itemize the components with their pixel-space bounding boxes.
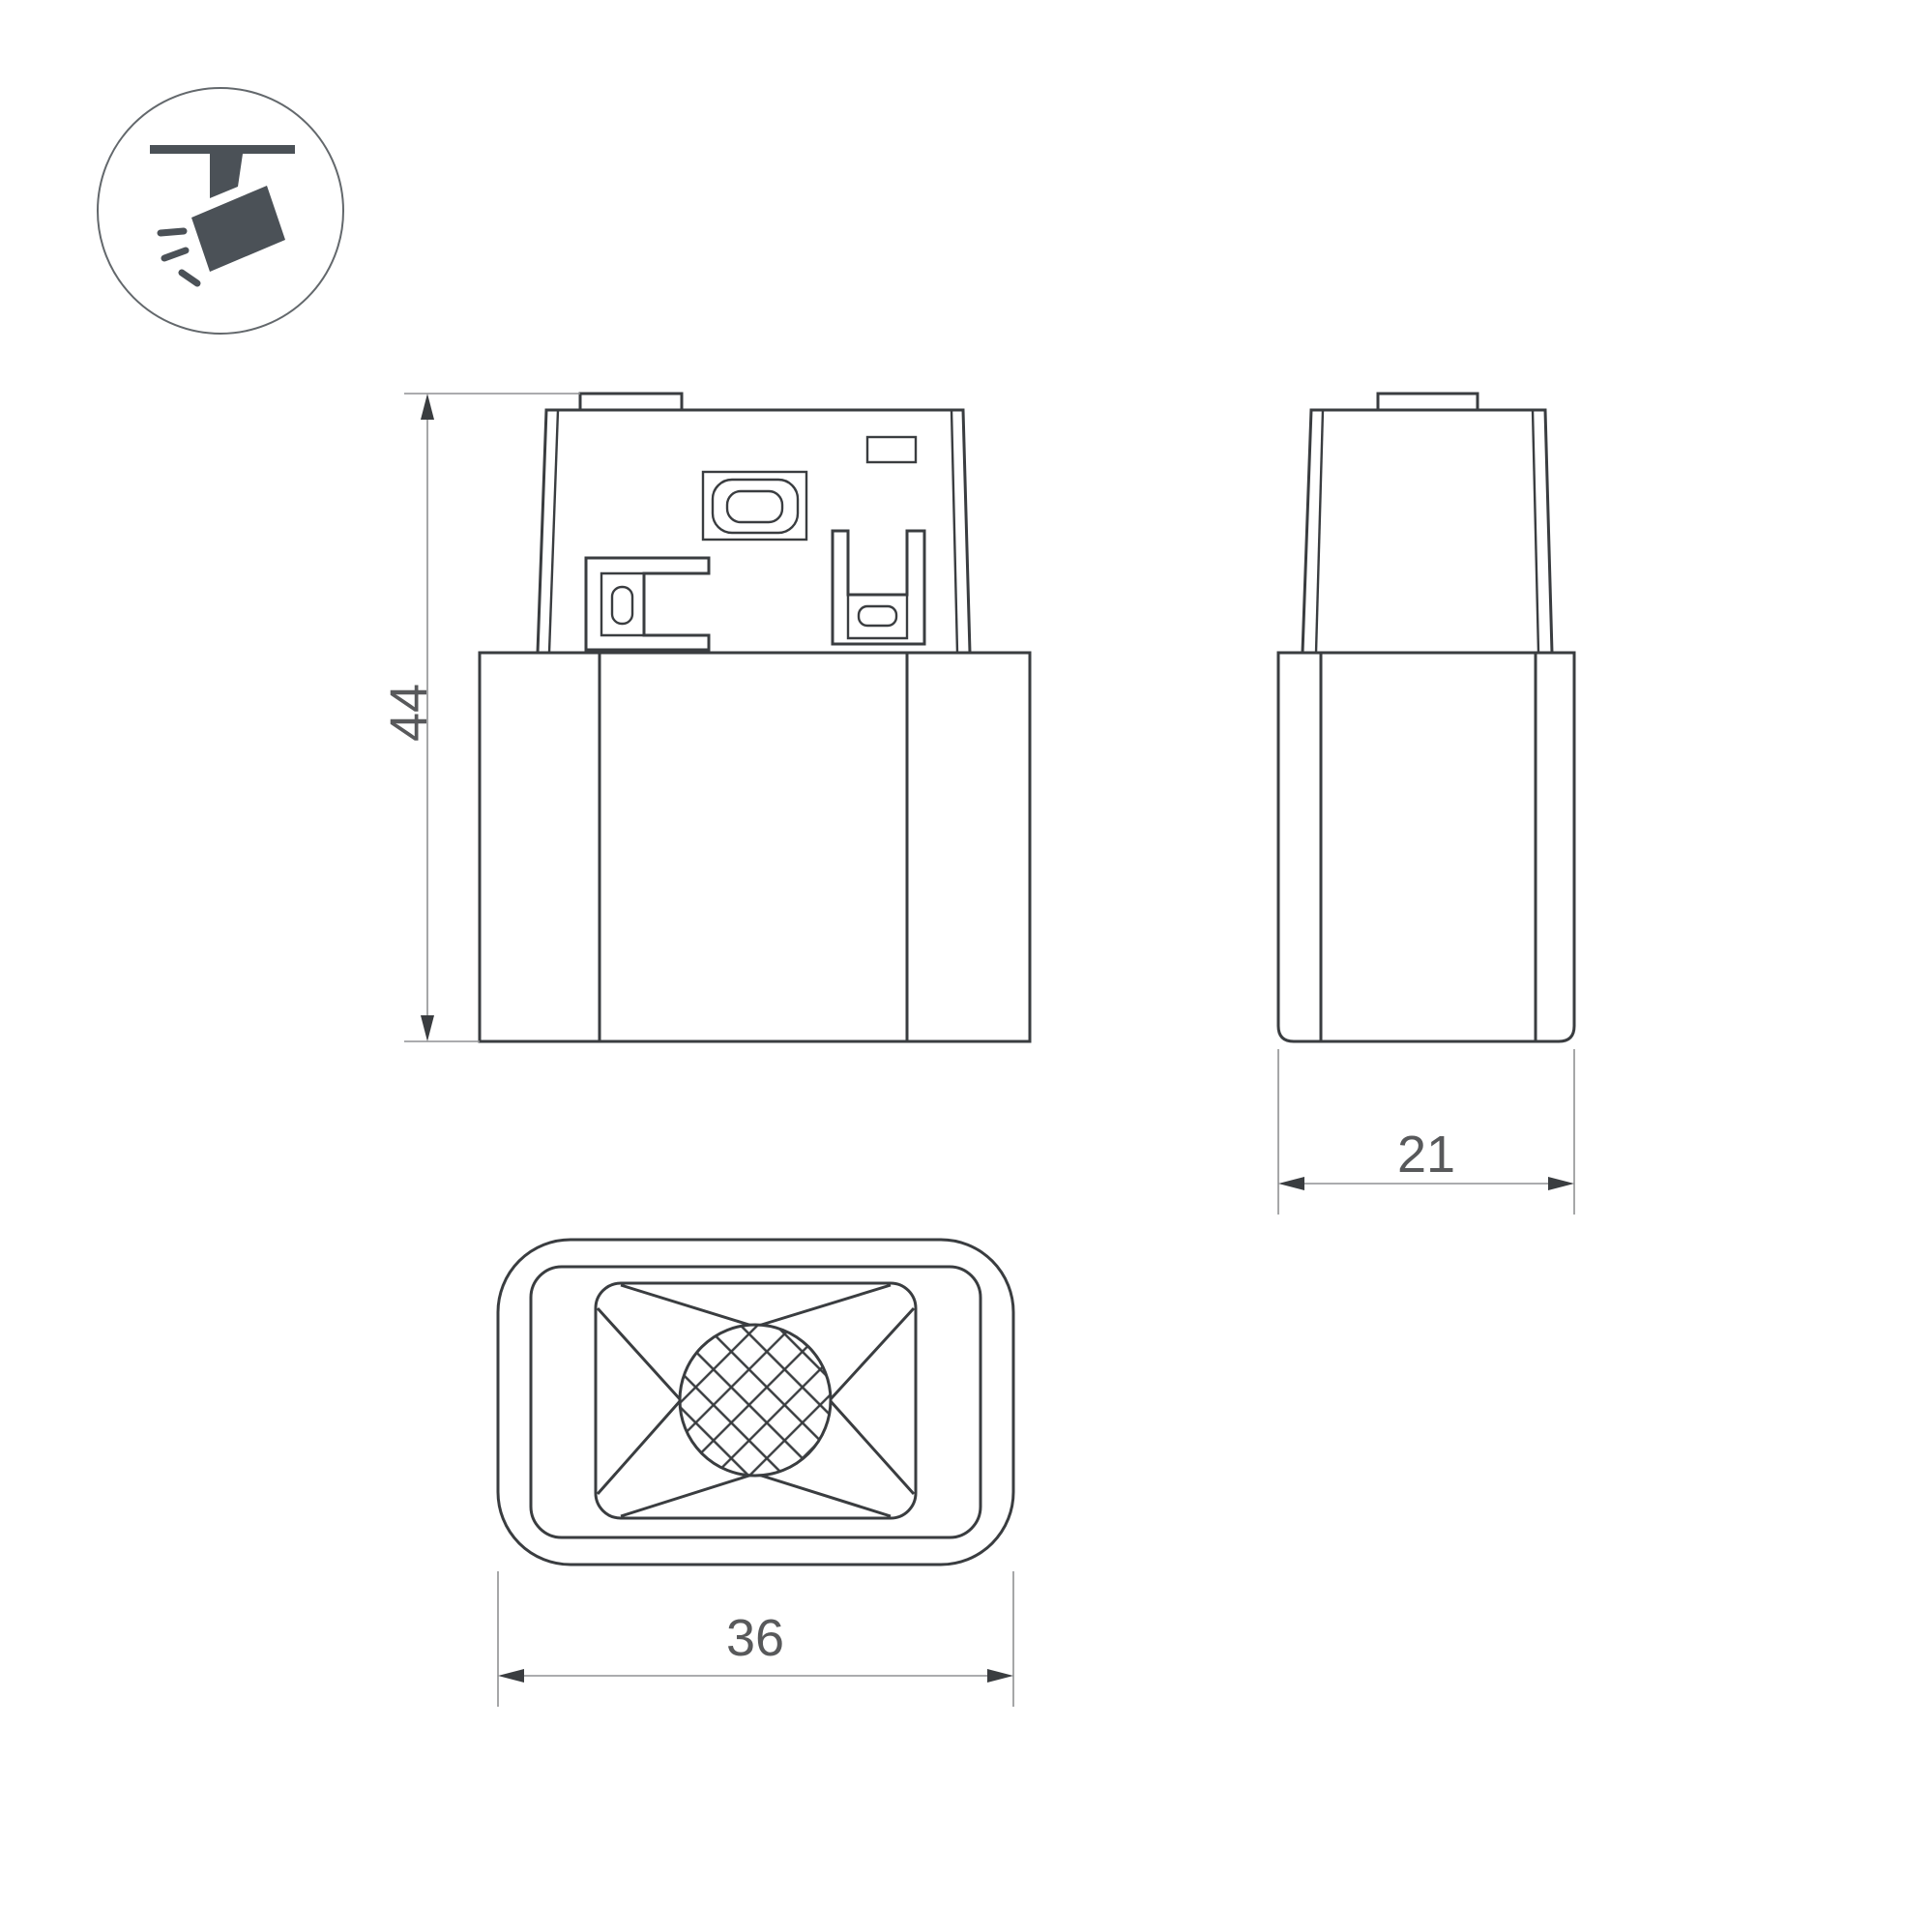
- dimension-value-width: 36: [726, 1609, 784, 1667]
- dimension-value-depth: 21: [1397, 1126, 1455, 1184]
- side-connector-body: [1303, 410, 1552, 653]
- arrowhead-left-icon: [1278, 1177, 1304, 1190]
- front-window-inner: [727, 491, 782, 522]
- arrowhead-right-icon: [987, 1669, 1013, 1683]
- dimension-depth: 21: [1278, 1049, 1574, 1215]
- side-top-tab: [1378, 394, 1478, 410]
- front-connector-right-inner-edge: [951, 410, 957, 653]
- icon-track-bar: [150, 145, 295, 154]
- side-view: [1278, 394, 1574, 1041]
- front-view: [480, 394, 1030, 1041]
- dimension-width: 36: [498, 1571, 1013, 1707]
- front-window-mid: [713, 480, 798, 533]
- arrowhead-right-icon: [1548, 1177, 1574, 1190]
- track-spotlight-icon: [98, 88, 343, 334]
- bottom-view: [498, 1240, 1013, 1565]
- arrowhead-down-icon: [421, 1015, 434, 1041]
- front-detail-rect: [867, 437, 916, 462]
- front-housing: [480, 653, 1030, 1041]
- side-connector-left-inner-edge: [1316, 410, 1323, 653]
- drawing-canvas: 44 21: [0, 0, 1932, 1932]
- arrowhead-left-icon: [498, 1669, 524, 1683]
- technical-drawing: 44 21: [0, 0, 1932, 1932]
- front-right-contact: [833, 531, 924, 644]
- front-connector-left-inner-edge: [549, 410, 558, 653]
- side-connector-right-inner-edge: [1533, 410, 1538, 653]
- front-top-tab: [580, 394, 682, 410]
- side-housing: [1278, 653, 1574, 1041]
- arrowhead-up-icon: [421, 394, 434, 420]
- dimension-value-height: 44: [380, 684, 438, 742]
- icon-light-ray: [161, 231, 184, 233]
